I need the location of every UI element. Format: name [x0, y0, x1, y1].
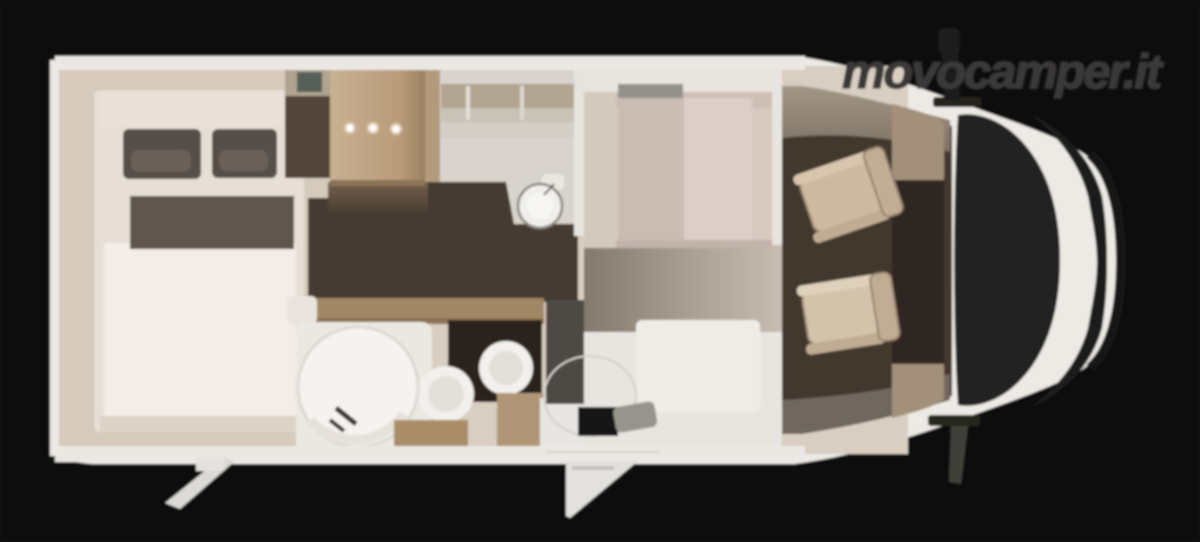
- svg-text:movocamper.it: movocamper.it: [842, 46, 1164, 99]
